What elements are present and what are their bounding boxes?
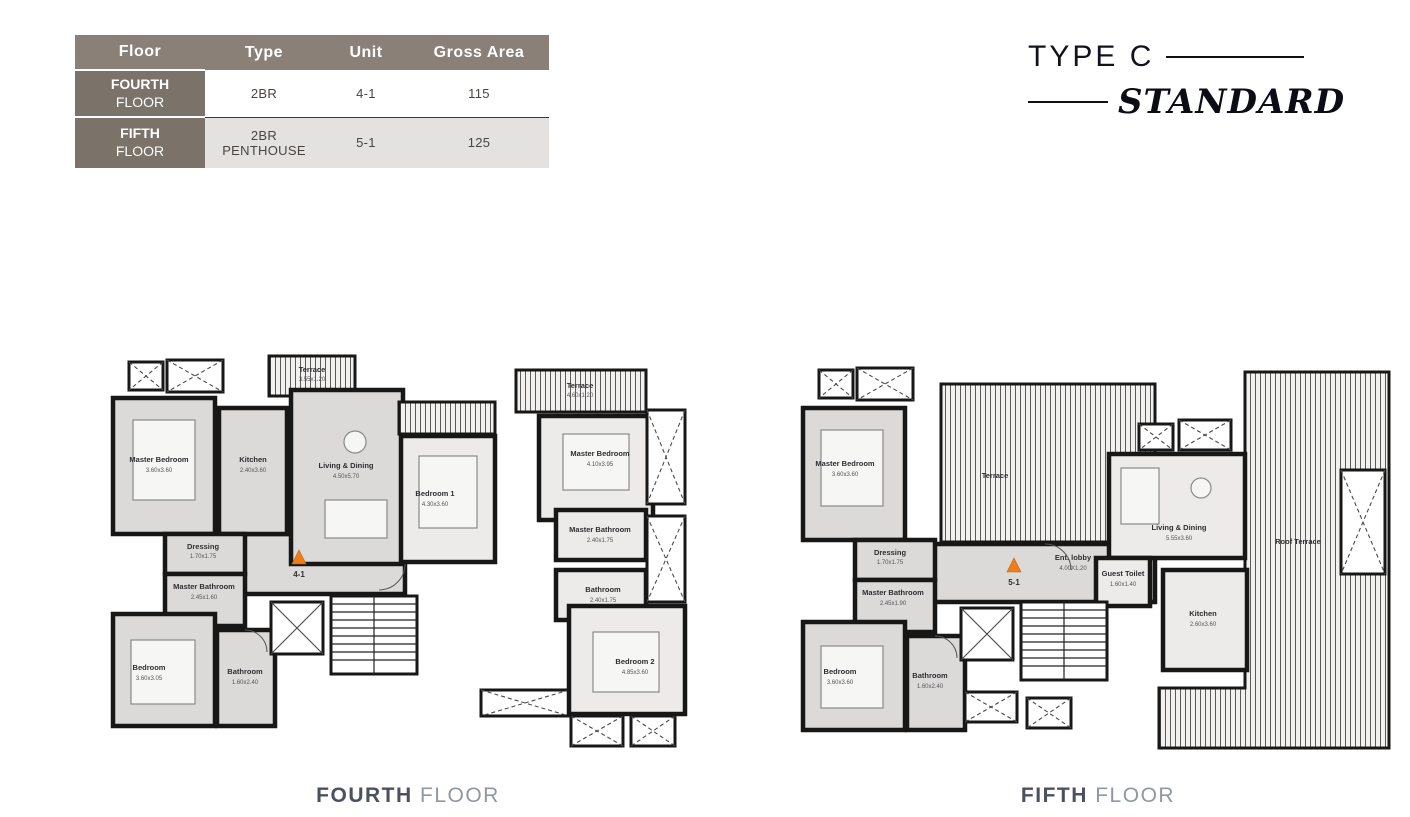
type-value: 2BR <box>205 70 323 117</box>
room-label: Dressing <box>874 548 907 557</box>
room-living-dining: Living & Dining 4.50x5.70 <box>291 390 403 564</box>
room-label: Master Bathroom <box>569 525 631 534</box>
bed-icon <box>821 430 883 506</box>
dining-table-icon <box>1121 468 1159 524</box>
room-label: Bathroom <box>585 585 621 594</box>
planter-boxes <box>819 368 913 400</box>
floor-name-bold: FIFTH <box>83 125 197 143</box>
room-label: Bedroom <box>133 663 166 672</box>
planter-boxes-right <box>1139 420 1231 450</box>
room-living-dining: Living & Dining 5.55x3.60 <box>1109 454 1245 558</box>
room-label: Master Bathroom <box>173 582 235 591</box>
room-label: Terrace <box>982 471 1009 480</box>
room-dims: 4.85x3.60 <box>622 670 649 676</box>
floor-name-bold: FOURTH <box>83 76 197 94</box>
title-rule <box>1028 101 1108 103</box>
floor-cell-fifth: FIFTH FLOOR <box>75 117 205 168</box>
table-row: FIFTH FLOOR 2BR PENTHOUSE 5-1 125 <box>75 117 549 168</box>
room-label: Terrace <box>299 365 326 374</box>
type-value: 2BR PENTHOUSE <box>205 117 323 168</box>
room-bathroom: Bathroom 1.60x2.40 <box>217 630 275 726</box>
planter-boxes <box>129 360 223 392</box>
room-label: Dressing <box>187 542 220 551</box>
gross-area-value: 115 <box>409 70 549 117</box>
unit-marker-label: 5-1 <box>1008 578 1020 587</box>
room-label: Bathroom <box>912 671 948 680</box>
room-dims: 1.70x1.75 <box>190 554 217 560</box>
room-label: Living & Dining <box>319 461 374 470</box>
room-label: Terrace <box>567 381 594 390</box>
room-dims: 4.00X1.20 <box>1059 566 1087 572</box>
bed-icon <box>821 646 883 708</box>
room-dims: 2.40x1.75 <box>590 598 617 604</box>
fourth-floor-plan: Terrace 3.55x1.20 Master Bedroom 3.60x3.… <box>103 350 713 765</box>
room-master-bedroom: Master Bedroom 3.60x3.60 <box>803 408 905 540</box>
fourth-floor-caption: FOURTH FLOOR <box>103 784 713 808</box>
room-dims: 2.40x3.60 <box>240 468 267 474</box>
room-dressing: Dressing 1.70x1.75 <box>855 540 935 580</box>
elevator-shaft <box>961 608 1013 660</box>
room-bedroom: Bedroom 3.60x3.60 <box>803 622 905 730</box>
room-dims: 1.60x1.40 <box>1110 582 1137 588</box>
room-label: Bedroom 1 <box>415 489 454 498</box>
room-label: Master Bathroom <box>862 588 924 597</box>
room-label: Roof Terrace <box>1275 537 1321 546</box>
header-gross-area: Gross Area <box>409 35 549 70</box>
round-table-icon <box>1191 478 1211 498</box>
bed-icon <box>131 640 195 704</box>
standard-label: STANDARD <box>1118 82 1345 122</box>
room-master-bedroom: Master Bedroom 3.60x3.60 <box>113 398 215 534</box>
unit-value: 4-1 <box>323 70 409 117</box>
room-dims: 4.10x3.95 <box>587 462 614 468</box>
title-row-standard: STANDARD <box>1028 82 1304 122</box>
room-dims: 3.60x3.05 <box>136 676 163 682</box>
floor-name-light: FLOOR <box>83 143 197 161</box>
room-dims: 1.70x1.75 <box>877 560 904 566</box>
room-label: Living & Dining <box>1152 523 1207 532</box>
table-row: FOURTH FLOOR 2BR 4-1 115 <box>75 70 549 117</box>
type-label: TYPE C <box>1028 40 1154 74</box>
header-floor: Floor <box>75 35 205 70</box>
title-row-type: TYPE C <box>1028 40 1304 74</box>
elevator-shaft <box>271 602 323 654</box>
room-dims: 2.45x1.60 <box>191 595 218 601</box>
room-dims: 4.50x5.70 <box>333 474 360 480</box>
room-dims: 3.60x3.60 <box>146 468 173 474</box>
floor-name-light: FLOOR <box>83 94 197 112</box>
room-bathroom: Bathroom 1.60x2.40 <box>907 636 965 730</box>
room-dims: 4.30x3.60 <box>422 502 449 508</box>
room-kitchen: Kitchen 2.60x3.60 <box>1163 570 1247 670</box>
type-title-block: TYPE C STANDARD <box>1028 40 1304 122</box>
room-dims: 2.40x1.75 <box>587 538 614 544</box>
room-dims: 1.60x2.40 <box>232 680 259 686</box>
room-label: Ent. lobby <box>1055 553 1092 562</box>
room-dims: 2.45x1.90 <box>880 601 907 607</box>
room-bedroom2: Bedroom 2 4.85x3.60 <box>569 606 685 714</box>
room-dressing: Dressing 1.70x1.75 <box>165 534 245 574</box>
room-dims: 1.60x2.40 <box>917 684 944 690</box>
room-dims: 5.55x3.60 <box>1166 536 1193 542</box>
floor-cell-fourth: FOURTH FLOOR <box>75 70 205 117</box>
room-dims: 4.60x1.20 <box>567 393 594 399</box>
room-label: Bedroom 2 <box>615 657 654 666</box>
terrace-right: Terrace 4.60x1.20 <box>516 370 646 412</box>
unit-info-table: Floor Type Unit Gross Area FOURTH FLOOR … <box>75 35 549 168</box>
room-guest-toilet: Guest Toilet 1.60x1.40 <box>1096 558 1150 606</box>
table-header-row: Floor Type Unit Gross Area <box>75 35 549 70</box>
floorplan-brochure-page: Floor Type Unit Gross Area FOURTH FLOOR … <box>0 0 1410 817</box>
room-dims: 3.60x3.60 <box>832 472 859 478</box>
staircase <box>1021 602 1107 680</box>
room-label: Kitchen <box>239 455 267 464</box>
unit-marker-label: 4-1 <box>293 570 305 579</box>
room-bedroom1: Bedroom 1 4.30x3.60 <box>401 436 495 562</box>
room-label: Kitchen <box>1189 609 1217 618</box>
caption-light: FLOOR <box>1095 784 1175 807</box>
title-rule <box>1166 56 1304 58</box>
room-label: Bathroom <box>227 667 263 676</box>
room-label: Guest Toilet <box>1102 569 1145 578</box>
room-bedroom: Bedroom 3.60x3.05 <box>113 614 215 726</box>
unit-value: 5-1 <box>323 117 409 168</box>
round-table-icon <box>344 431 366 453</box>
room-label: Master Bedroom <box>129 455 189 464</box>
room-label: Bedroom <box>824 667 857 676</box>
caption-light: FLOOR <box>420 784 500 807</box>
room-kitchen: Kitchen 2.40x3.60 <box>219 408 287 534</box>
room-label: Master Bedroom <box>815 459 875 468</box>
staircase <box>331 596 417 674</box>
balcony-railing <box>399 402 495 434</box>
fifth-floor-plan: Roof Terrace Terrace Ent. lobby 4.00X1.2… <box>793 358 1403 763</box>
room-label: Master Bedroom <box>570 449 630 458</box>
dining-table-icon <box>325 500 387 538</box>
header-unit: Unit <box>323 35 409 70</box>
header-type: Type <box>205 35 323 70</box>
fifth-floor-caption: FIFTH FLOOR <box>793 784 1403 808</box>
shaft-boxes-bottom <box>965 692 1071 728</box>
caption-bold: FOURTH <box>316 784 413 807</box>
room-dims: 3.55x1.20 <box>299 377 326 383</box>
room-dims: 3.60x3.60 <box>827 680 854 686</box>
room-master-bedroom-right: Master Bedroom 4.10x3.95 <box>539 416 653 520</box>
gross-area-value: 125 <box>409 117 549 168</box>
caption-bold: FIFTH <box>1021 784 1088 807</box>
room-master-bathroom-right: Master Bathroom 2.40x1.75 <box>556 510 646 560</box>
room-dims: 2.60x3.60 <box>1190 622 1217 628</box>
